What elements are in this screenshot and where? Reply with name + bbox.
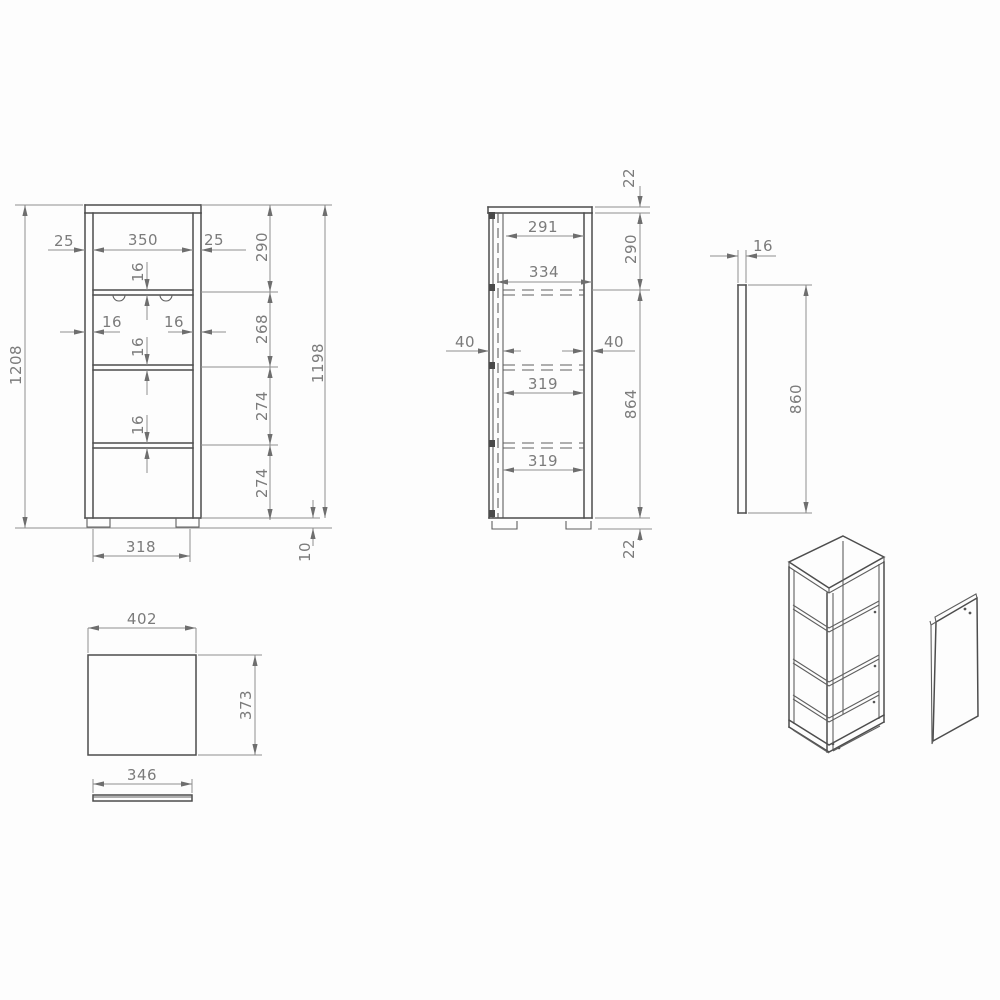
dim-front-base-width: 318 <box>126 538 156 556</box>
dim-side-bottom-panel: 22 <box>620 539 638 559</box>
dim-front-section-4: 274 <box>253 468 271 498</box>
front-foot-left <box>87 518 110 527</box>
side-foot-right <box>566 521 591 529</box>
back-panel-labels: 16 860 <box>753 237 805 414</box>
front-view-outline <box>85 205 201 527</box>
dim-front-shelf2-thickness: 16 <box>129 337 147 357</box>
dim-front-section-top: 290 <box>253 232 271 262</box>
door-handle-hole <box>969 612 972 615</box>
hinge-plate <box>489 212 495 219</box>
dim-side-setback-right: 40 <box>604 333 624 351</box>
door-handle-hole <box>964 608 967 611</box>
top-view-dimensions <box>88 628 262 755</box>
top-view: 402 373 <box>88 610 262 755</box>
hinge-plate <box>489 362 495 369</box>
dim-front-body-height: 1198 <box>309 343 327 383</box>
iso-cabinet <box>789 536 884 753</box>
back-panel-view: 16 860 <box>710 237 812 513</box>
dim-side-section-top: 290 <box>622 234 640 264</box>
dim-front-foot-height: 10 <box>296 542 314 562</box>
dim-front-shelf3-thickness: 16 <box>129 415 147 435</box>
hinge-plate <box>489 284 495 291</box>
dim-side-top-panel: 22 <box>620 168 638 188</box>
dim-front-inner-width: 350 <box>128 231 158 249</box>
dim-side-mid-height: 864 <box>622 389 640 419</box>
back-panel-outline <box>738 285 746 513</box>
front-view-labels: 25 350 25 16 16 16 16 16 290 268 274 274… <box>7 231 327 562</box>
side-view-labels: 22 291 290 334 40 40 319 864 319 22 <box>455 168 640 559</box>
side-foot-left <box>492 521 517 529</box>
front-foot-right <box>176 518 199 527</box>
dim-side-depth-319a: 319 <box>528 375 558 393</box>
iso-door-panel <box>930 594 978 744</box>
dim-side-depth-334: 334 <box>529 263 559 281</box>
hinge-cup-left <box>113 295 125 301</box>
technical-drawing-sheet: 25 350 25 16 16 16 16 16 290 268 274 274… <box>0 0 1000 1000</box>
dim-plinth-width: 346 <box>127 766 157 784</box>
plinth-view: 346 <box>93 766 192 801</box>
dim-front-top-shelf-thickness: 16 <box>129 262 147 282</box>
dim-back-panel-thickness: 16 <box>753 237 773 255</box>
isometric-view <box>789 536 978 753</box>
dim-front-section-3: 274 <box>253 391 271 421</box>
dim-side-depth-291: 291 <box>528 218 558 236</box>
back-panel-dimensions <box>710 250 812 513</box>
front-view: 25 350 25 16 16 16 16 16 290 268 274 274… <box>7 205 332 562</box>
dim-front-wall-left: 16 <box>102 313 122 331</box>
dim-front-wall-right: 16 <box>164 313 184 331</box>
plinth-outline <box>93 795 192 801</box>
top-view-outline <box>88 655 196 755</box>
top-view-labels: 402 373 <box>127 610 255 720</box>
hinge-cup-right <box>160 295 172 301</box>
dim-side-depth-319b: 319 <box>528 452 558 470</box>
front-view-dimensions <box>15 205 332 562</box>
hinge-plate <box>489 440 495 447</box>
hinge-plate <box>489 510 495 517</box>
furniture-dimension-drawing: 25 350 25 16 16 16 16 16 290 268 274 274… <box>0 0 1000 1000</box>
dim-front-overhang-right: 25 <box>204 231 224 249</box>
dim-back-panel-height: 860 <box>787 384 805 414</box>
dim-top-depth: 373 <box>237 690 255 720</box>
side-view: 22 291 290 334 40 40 319 864 319 22 <box>446 168 652 559</box>
dim-side-setback-left: 40 <box>455 333 475 351</box>
dim-top-width: 402 <box>127 610 157 628</box>
dim-front-section-2: 268 <box>253 314 271 344</box>
dim-front-overhang-left: 25 <box>54 232 74 250</box>
dim-front-total-height: 1208 <box>7 345 25 385</box>
side-view-outline <box>488 207 592 529</box>
